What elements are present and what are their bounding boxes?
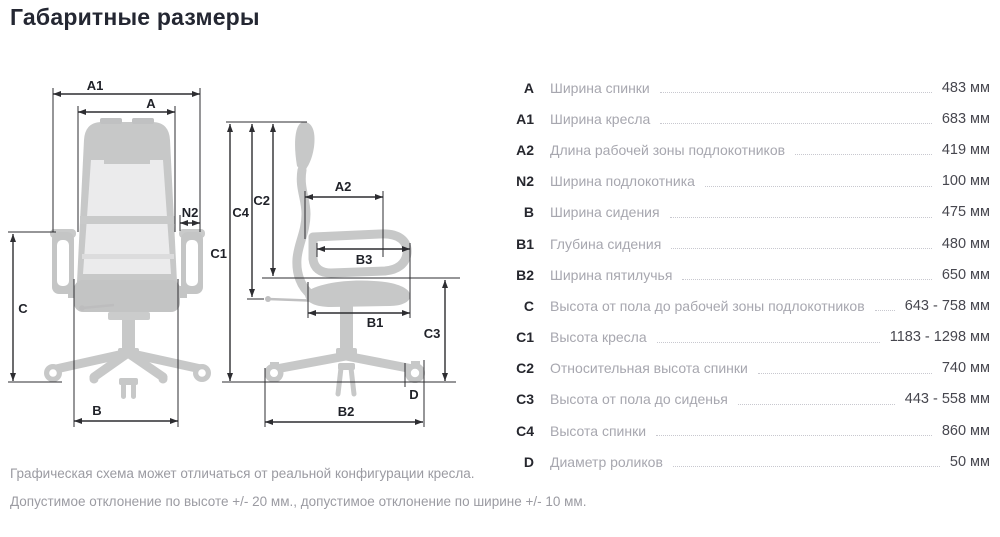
table-row: A2 Длина рабочей зоны подлокотников 419 … — [500, 134, 990, 165]
spec-label: Высота от пола до рабочей зоны подлокотн… — [550, 298, 865, 314]
caster-left-hub — [49, 369, 57, 377]
label-b1: B1 — [367, 315, 384, 330]
spec-code: C2 — [500, 360, 534, 376]
leader-line — [660, 92, 932, 93]
leader-line — [657, 342, 880, 343]
table-row: A1 Ширина кресла 683 мм — [500, 103, 990, 134]
spec-value: 740 мм — [942, 360, 990, 376]
spec-value: 860 мм — [942, 423, 990, 439]
spec-value: 480 мм — [942, 236, 990, 252]
spec-value: 650 мм — [942, 267, 990, 283]
spec-code: N2 — [500, 173, 534, 189]
label-a1: A1 — [87, 78, 104, 93]
spec-value: 50 мм — [950, 454, 990, 470]
leader-line — [656, 435, 932, 436]
table-row: C1 Высота кресла 1183 - 1298 мм — [500, 322, 990, 353]
footnote-tolerance: Допустимое отклонение по высоте +/- 20 м… — [10, 492, 680, 511]
lumbar-band — [80, 216, 175, 224]
label-a: A — [146, 96, 156, 111]
spec-value: 475 мм — [942, 204, 990, 220]
label-d: D — [409, 387, 418, 402]
table-row: A Ширина спинки 483 мм — [500, 72, 990, 103]
footnote-schematic: Графическая схема может отличаться от ре… — [10, 464, 680, 483]
table-row: C4 Высота спинки 860 мм — [500, 415, 990, 446]
leader-line — [738, 404, 895, 405]
spec-value: 443 - 558 мм — [905, 391, 990, 407]
fork-prong — [351, 368, 354, 394]
spec-code: A2 — [500, 142, 534, 158]
chair-dimensions-page: Габаритные размеры — [0, 0, 1000, 537]
armrest-left-cutout — [57, 240, 69, 286]
spec-label: Длина рабочей зоны подлокотников — [550, 142, 785, 158]
gas-lift-front — [122, 320, 135, 350]
spec-label: Относительная высота спинки — [550, 360, 748, 376]
spec-code: B — [500, 204, 534, 220]
table-row: C3 Высота от пола до сиденья 443 - 558 м… — [500, 384, 990, 415]
label-n2: N2 — [182, 205, 199, 220]
spec-code: C1 — [500, 329, 534, 345]
spec-label: Глубина сидения — [550, 236, 661, 252]
spec-value: 643 - 758 мм — [905, 298, 990, 314]
leader-line — [660, 123, 932, 124]
chair-side-view — [265, 122, 426, 394]
armrest-right-cutout — [186, 240, 198, 286]
leader-line — [875, 310, 895, 311]
spec-value: 483 мм — [942, 80, 990, 96]
leader-line — [682, 279, 931, 280]
leg-tip — [159, 375, 168, 384]
label-c4: C4 — [232, 205, 249, 220]
five-star-base-front — [56, 353, 201, 377]
spec-code: B2 — [500, 267, 534, 283]
fork-prong — [338, 368, 341, 394]
spec-label: Высота от пола до сиденья — [550, 391, 728, 407]
backrest-side — [297, 170, 311, 295]
caster-right-hub — [198, 369, 206, 377]
table-row: B2 Ширина пятилучья 650 мм — [500, 259, 990, 290]
table-row: C2 Относительная высота спинки 740 мм — [500, 353, 990, 384]
headrest-connector — [104, 156, 150, 164]
spec-code: A — [500, 80, 534, 96]
headrest-side — [295, 122, 314, 173]
leader-line — [758, 373, 932, 374]
label-c2: C2 — [253, 193, 270, 208]
spec-code: C — [500, 298, 534, 314]
label-b: B — [92, 403, 101, 418]
label-c3: C3 — [424, 326, 441, 341]
caster-front-hub — [411, 369, 419, 377]
spec-label: Ширина сидения — [550, 204, 660, 220]
spec-code: C4 — [500, 423, 534, 439]
footnotes: Графическая схема может отличаться от ре… — [10, 464, 680, 520]
leader-line — [795, 154, 932, 155]
caster-back-hub — [270, 369, 278, 377]
leader-line — [705, 186, 932, 187]
label-b3: B3 — [356, 252, 373, 267]
headrest-notch — [100, 118, 122, 124]
spec-label: Ширина пятилучья — [550, 267, 672, 283]
seat-side — [305, 281, 410, 308]
fork-prong — [121, 382, 126, 399]
extension-lines — [8, 88, 460, 427]
seat-mechanism — [108, 312, 150, 320]
table-row: N2 Ширина подлокотника 100 мм — [500, 166, 990, 197]
leader-line — [671, 248, 932, 249]
spec-value: 419 мм — [942, 142, 990, 158]
chair-front-view — [44, 118, 211, 399]
dimensions-table: A Ширина спинки 483 мм A1 Ширина кресла … — [500, 72, 990, 477]
chair-dimension-diagram: A1 A N2 C B C1 C4 C2 A2 B3 B1 C3 D B2 — [0, 60, 500, 480]
lever-knob-front — [79, 305, 85, 311]
spec-code: B1 — [500, 236, 534, 252]
leader-line — [673, 466, 940, 467]
table-row: B1 Глубина сидения 480 мм — [500, 228, 990, 259]
spec-code: A1 — [500, 111, 534, 127]
label-b2: B2 — [338, 404, 355, 419]
mesh-seam — [82, 254, 174, 259]
spec-label: Ширина подлокотника — [550, 173, 695, 189]
page-title: Габаритные размеры — [10, 4, 260, 31]
spec-value: 683 мм — [942, 111, 990, 127]
fork-prong — [131, 382, 136, 399]
label-c1: C1 — [210, 246, 227, 261]
label-c: C — [18, 301, 28, 316]
spec-value: 1183 - 1298 мм — [890, 329, 990, 345]
spec-code: C3 — [500, 391, 534, 407]
leg-tip — [90, 375, 99, 384]
label-a2: A2 — [335, 179, 352, 194]
table-row: C Высота от пола до рабочей зоны подлоко… — [500, 290, 990, 321]
spec-value: 100 мм — [942, 173, 990, 189]
spec-label: Ширина спинки — [550, 80, 650, 96]
headrest-notch — [132, 118, 154, 124]
leader-line — [670, 217, 932, 218]
spec-label: Ширина кресла — [550, 111, 650, 127]
spec-label: Высота кресла — [550, 329, 647, 345]
spec-label: Высота спинки — [550, 423, 646, 439]
table-row: B Ширина сидения 475 мм — [500, 197, 990, 228]
